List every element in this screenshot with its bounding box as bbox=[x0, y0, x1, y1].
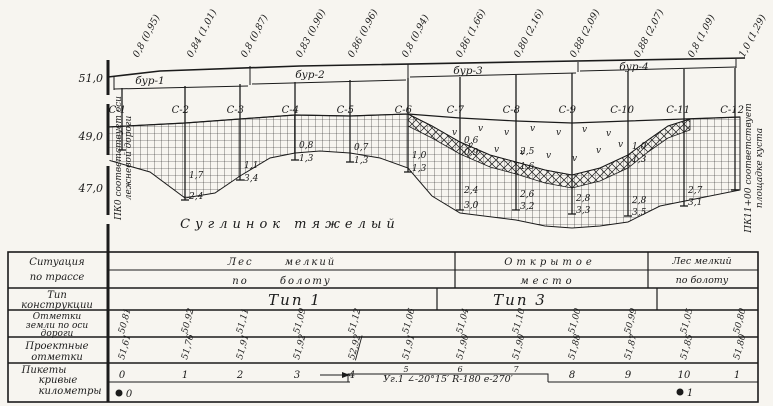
marsh-symbol: v bbox=[582, 125, 587, 135]
depth-value: 3,0 bbox=[464, 201, 479, 211]
sounding-label: С-7 bbox=[447, 105, 465, 116]
situation-cell: место bbox=[520, 276, 575, 287]
row-header: отметки bbox=[31, 352, 83, 363]
ground-mark: 51,05 bbox=[679, 307, 695, 335]
depth-value: 2,7 bbox=[687, 186, 703, 196]
kilometre-markers: 0 1 bbox=[116, 388, 694, 400]
picket-number: 8 bbox=[569, 370, 575, 381]
design-line-and-brackets bbox=[108, 58, 745, 90]
elevation-label: 51,0 bbox=[79, 72, 104, 85]
elevation-label: 49,0 bbox=[78, 130, 104, 143]
borehole-group-label: бур-1 bbox=[135, 75, 164, 87]
row-header: Проектные bbox=[24, 341, 88, 352]
row-header: Ситуация bbox=[29, 257, 84, 268]
ground-mark: 50,81 bbox=[117, 307, 133, 334]
ground-mark: 51,09 bbox=[292, 307, 308, 335]
depth-value: 2,4 bbox=[188, 192, 204, 202]
fill-height-label: 0,86 (0,96) bbox=[346, 7, 381, 59]
depth-value: 2,4 bbox=[463, 186, 479, 196]
row-header: дороги bbox=[41, 329, 74, 339]
kilometre-number: 0 bbox=[126, 389, 133, 400]
marsh-symbol: v bbox=[504, 128, 509, 138]
depth-value: 1,3 bbox=[632, 155, 647, 165]
fill-height-label: 0,8 (0,95) bbox=[131, 13, 163, 60]
sounding-label: С-9 bbox=[559, 105, 577, 116]
fill-height-label: 0,88 (2,07) bbox=[632, 7, 667, 59]
picket-number: 9 bbox=[625, 370, 632, 381]
marsh-symbol: v bbox=[452, 128, 457, 138]
marsh-symbol: v bbox=[494, 145, 499, 155]
fill-height-label: 0,86 (1,66) bbox=[454, 7, 489, 59]
curve-note: Уг.1 ∠-20°15′ R-180 е-270′ bbox=[383, 374, 514, 385]
situation-cell: по болоту bbox=[676, 275, 729, 286]
marsh-symbol: v bbox=[520, 148, 525, 158]
picket-number: 0 bbox=[119, 370, 126, 381]
marsh-symbol: v bbox=[596, 146, 601, 156]
picket-number: 1 bbox=[734, 370, 740, 381]
depth-value: 3,4 bbox=[244, 174, 259, 184]
depth-value: 3,2 bbox=[520, 202, 535, 212]
sounding-label: С-10 bbox=[610, 105, 634, 116]
depth-value: 1,3 bbox=[412, 164, 427, 174]
depth-value: 1,3 bbox=[299, 154, 314, 164]
depth-value: 0,7 bbox=[354, 143, 369, 153]
depth-value: 2,8 bbox=[575, 194, 591, 204]
sounding-label: С-3 bbox=[227, 105, 244, 116]
fill-height-label: 1,0 (1,29) bbox=[737, 13, 769, 60]
elevation-label: 47,0 bbox=[78, 182, 104, 195]
borehole-group-label: бур-4 bbox=[619, 61, 648, 73]
depth-value: 1,6 bbox=[520, 162, 535, 172]
picket-number: 5 bbox=[403, 365, 408, 374]
picket-number: 1 bbox=[182, 370, 188, 381]
construction-type-cell: Тип 1 bbox=[268, 291, 322, 309]
marsh-symbol: v bbox=[556, 128, 561, 138]
fill-height-label: 0,8 (0,94) bbox=[400, 13, 432, 60]
depth-value: 3,5 bbox=[632, 208, 647, 218]
ground-mark: 50,80 bbox=[732, 307, 748, 335]
picket-number: 3 bbox=[294, 370, 300, 381]
picket-number: 10 bbox=[678, 370, 691, 381]
sounding-label: С-2 bbox=[172, 105, 189, 116]
picket-number: 4 bbox=[348, 370, 355, 381]
fill-height-label: 0,8 (0,87) bbox=[239, 13, 271, 60]
sounding-label: С-11 bbox=[666, 105, 690, 116]
left-axis-note: лежневой дороги bbox=[124, 116, 134, 201]
sounding-label: С-8 bbox=[503, 105, 520, 116]
sounding-label: С-12 bbox=[720, 105, 744, 116]
marsh-symbol: v bbox=[468, 141, 473, 151]
sounding-label: С-1 bbox=[109, 105, 126, 116]
marsh-symbol: v bbox=[606, 129, 611, 139]
marsh-symbol: v bbox=[546, 151, 551, 161]
depth-value: 1,1 bbox=[244, 161, 258, 171]
depth-value: 0,8 bbox=[299, 141, 314, 151]
fill-height-label: 0,84 (1,01) bbox=[185, 7, 220, 59]
ground-mark: 51,06 bbox=[401, 307, 417, 335]
row-header: кривые bbox=[39, 375, 78, 386]
depth-value: 3,3 bbox=[576, 206, 591, 216]
marsh-symbol: v bbox=[478, 124, 483, 134]
fill-height-label: 0,80 (2,16) bbox=[512, 7, 547, 59]
picket-number: 6 bbox=[457, 365, 462, 374]
sounding-label: С-4 bbox=[282, 105, 299, 116]
fill-height-label: 0,88 (2,09) bbox=[568, 7, 603, 59]
borehole-group-label: бур-2 bbox=[295, 69, 325, 81]
ground-mark: 51,11 bbox=[235, 307, 251, 334]
ground-mark: 50,92 bbox=[180, 307, 196, 335]
marsh-symbol: v bbox=[572, 154, 577, 164]
marsh-symbol: v bbox=[530, 124, 535, 134]
ground-mark: 51,12 bbox=[347, 307, 363, 335]
fill-height-label: 0,8 (1,09) bbox=[686, 13, 718, 60]
depth-value: 1,7 bbox=[189, 171, 204, 181]
ground-mark: 50,99 bbox=[623, 307, 639, 335]
row-header: по трассе bbox=[30, 272, 85, 283]
situation-cell: Лес мелкий bbox=[671, 256, 731, 267]
construction-type-cell: Тип 3 bbox=[493, 291, 547, 309]
marsh-symbol: v bbox=[618, 140, 623, 150]
right-axis-note: ПК11+00 соответствует bbox=[744, 103, 754, 234]
sounding-label: С-6 bbox=[395, 105, 413, 116]
depth-value: 2,8 bbox=[631, 196, 647, 206]
right-axis-note: площадке куста bbox=[755, 128, 765, 208]
row-header: конструкции bbox=[21, 300, 93, 311]
depth-value: 1,3 bbox=[354, 156, 369, 166]
ground-mark: 51,00 bbox=[567, 307, 583, 335]
depth-value: 3,1 bbox=[688, 198, 702, 208]
row-header: километры bbox=[38, 386, 101, 397]
depth-value: 1,0 bbox=[412, 151, 427, 161]
sounding-label: С-5 bbox=[337, 105, 354, 116]
situation-cell: Открытое bbox=[504, 257, 596, 268]
drawing-canvas: бур-1 бур-2 бур-3 бур-4 51,0 49,0 47,0 П… bbox=[0, 0, 773, 406]
fill-height-label: 0,83 (0,90) bbox=[294, 7, 329, 59]
depth-value: 2,6 bbox=[519, 190, 535, 200]
soil-label: Суглинок тяжелый bbox=[180, 217, 400, 232]
situation-cell: Лес мелкий bbox=[227, 257, 336, 268]
ground-mark: 51,04 bbox=[455, 307, 471, 335]
kilometre-number: 1 bbox=[687, 388, 693, 399]
ground-mark: 51,10 bbox=[511, 307, 527, 335]
longitudinal-profile-drawing: бур-1 бур-2 бур-3 бур-4 51,0 49,0 47,0 П… bbox=[0, 0, 773, 406]
borehole-group-label: бур-3 bbox=[453, 65, 483, 77]
picket-number: 2 bbox=[236, 370, 243, 381]
depth-value: 1,0 bbox=[632, 142, 647, 152]
situation-cell: по болоту bbox=[232, 276, 331, 287]
